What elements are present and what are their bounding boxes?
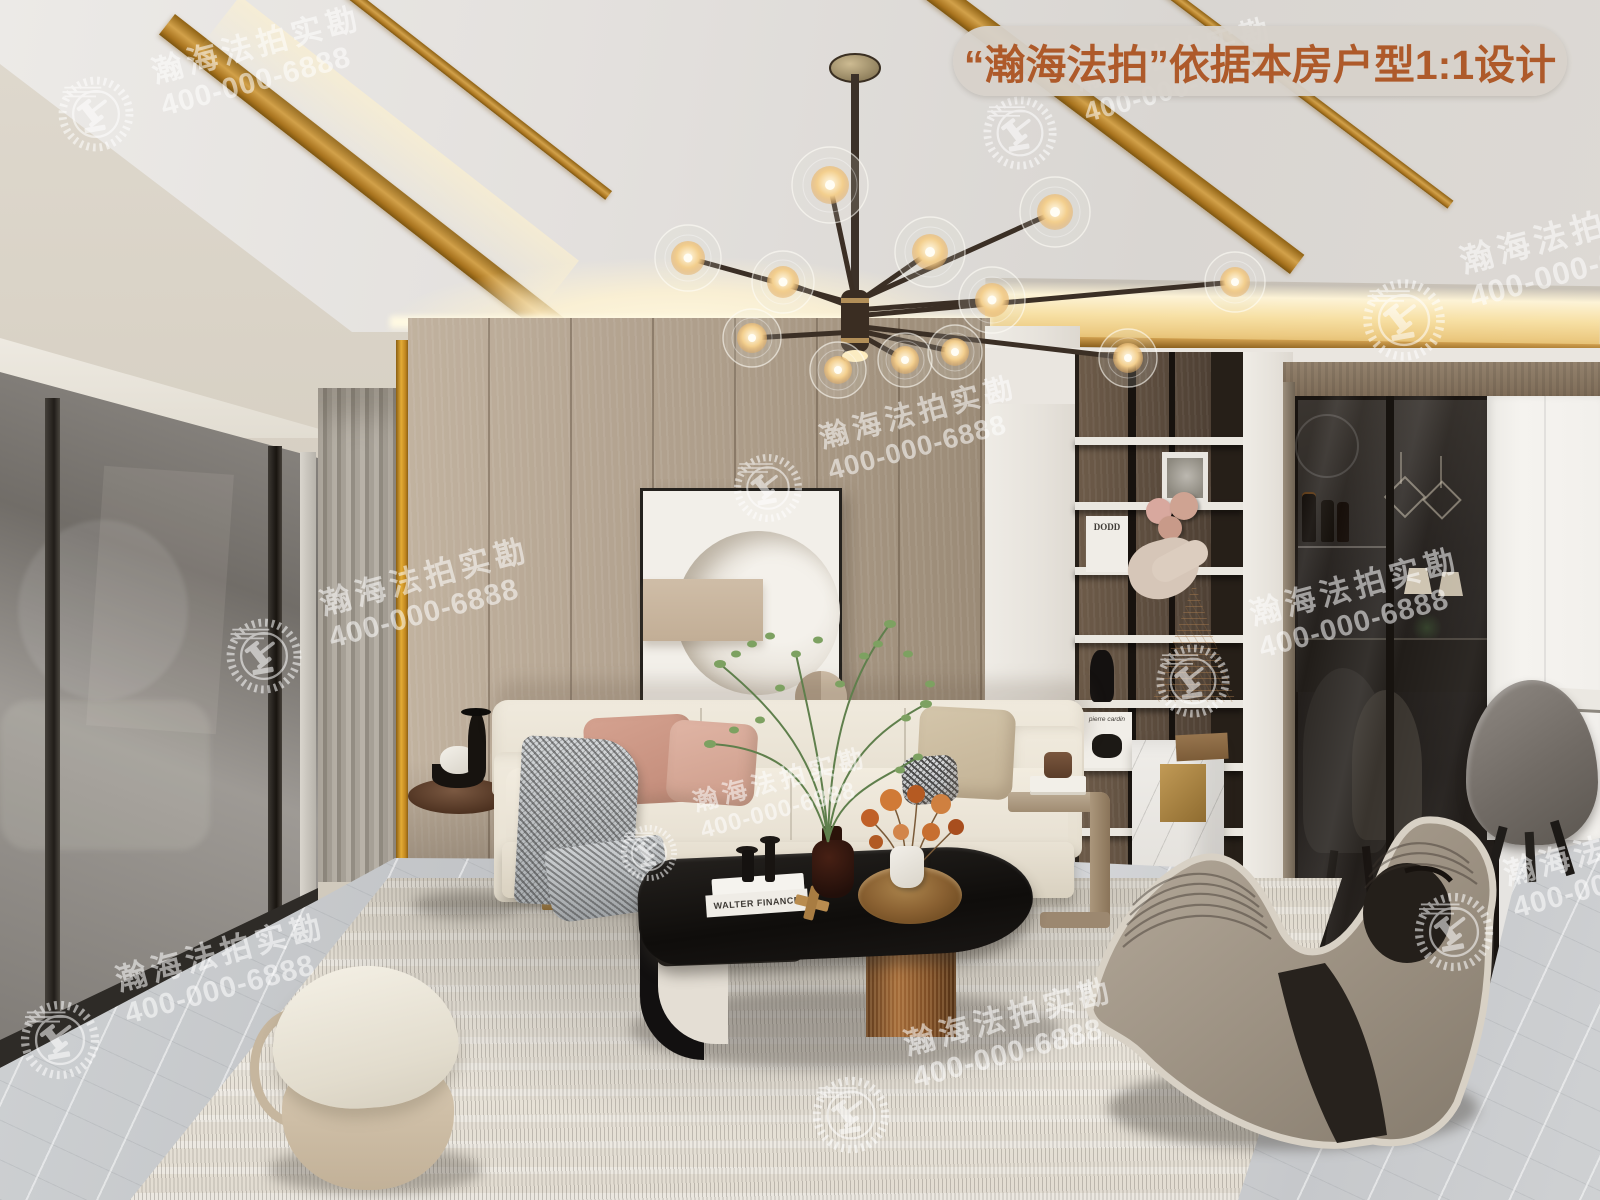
- glass-reflection-sofa: [0, 700, 210, 850]
- promo-banner: “瀚海法拍”依据本房户型1:1设计: [953, 26, 1567, 96]
- door-frame-mullion-right: [268, 446, 282, 914]
- promo-banner-text: “瀚海法拍”依据本房户型1:1设计: [964, 31, 1556, 91]
- upper-wood-band: [1283, 362, 1600, 400]
- shelf: [1075, 437, 1243, 445]
- glass-reflection-art: [86, 466, 234, 734]
- curtain-slats: [318, 388, 398, 882]
- figurine: [468, 712, 486, 778]
- book-title: pierre cardin: [1089, 716, 1125, 723]
- lounge-chair: [1075, 805, 1515, 1150]
- shelf: [1075, 635, 1243, 643]
- figurine-hat: [461, 708, 491, 716]
- end-table-jar: [1044, 752, 1072, 778]
- pedestal-bronze-top: [1175, 733, 1228, 762]
- living-room-photo: DODD pierre cardin: [0, 0, 1600, 1200]
- shelf-book-dodd: DODD: [1086, 516, 1128, 572]
- shelf-figurine: [1090, 650, 1114, 702]
- door-frame-edge: [300, 452, 316, 914]
- white-flower-vase: [890, 846, 924, 888]
- book-title: WALTER FINANCE: [713, 895, 800, 911]
- book-art: [1092, 734, 1122, 758]
- end-table-book: [1030, 776, 1086, 792]
- book-title: DODD: [1094, 522, 1121, 532]
- door-frame-mullion-left: [45, 398, 60, 1038]
